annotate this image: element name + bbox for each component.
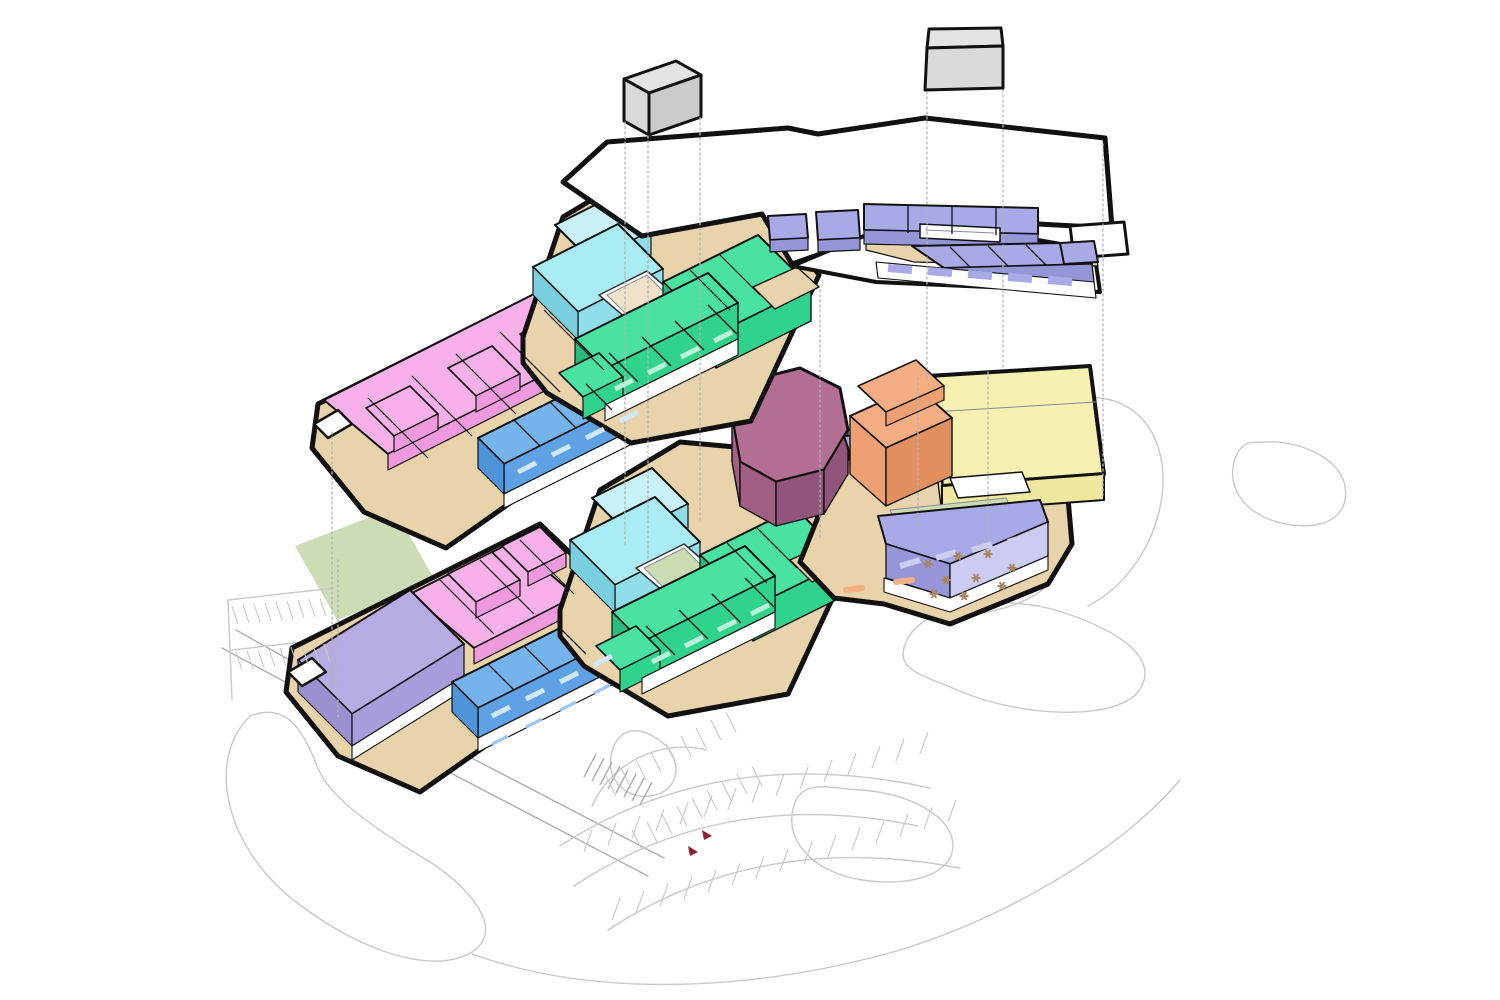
site-midlot-ticks-row1 (711, 720, 721, 740)
site-blob-right-3 (1233, 442, 1346, 526)
upper-right-purple-box-b-front (770, 238, 808, 252)
site-left-lot-ticks-row1 (243, 605, 249, 623)
site-parking-arc-outer-2 (608, 858, 960, 930)
site-left-lot-ticks-row1 (320, 598, 326, 616)
site-parking-arc-ticks-row1 (824, 760, 832, 782)
upper-right-band-windows (1008, 277, 1032, 279)
site-red-mark-2 (702, 830, 712, 840)
site-midlot-ticks-row1 (651, 752, 661, 772)
upper-right-band-windows (1048, 280, 1072, 282)
site-parking-arc-ticks-row2 (780, 849, 788, 871)
site-parking-arc-ticks-row1 (776, 774, 784, 796)
site-parking-arc-ticks-row1 (848, 753, 856, 775)
ground-orange-window-2 (896, 580, 912, 582)
site-parking-arc-ticks-row2 (612, 898, 620, 920)
site-parking-arc-ticks-row2 (660, 884, 668, 906)
site-parking-arc-outer (560, 774, 930, 846)
site-midlot-ticks-row2 (692, 798, 702, 818)
site-left-lot-ticks-row1 (232, 606, 238, 624)
site-sweep-bottom (472, 780, 1180, 984)
site-crosswalk-ticks (608, 766, 620, 789)
site-parking-arc-ticks-row1 (728, 788, 736, 810)
site-midlot-boundary (592, 747, 706, 806)
site-parking-arc-ticks-row1 (920, 732, 928, 754)
site-blob-center (610, 731, 676, 797)
exploded-axonometric-diagram (0, 0, 1500, 1000)
site-midlot-ticks-row2 (707, 790, 717, 810)
site-parking-arc-ticks-row1 (632, 816, 640, 838)
site-midlot-ticks-row1 (696, 728, 706, 748)
upper-right-band-windows (888, 268, 912, 270)
site-left-lot-ticks-row2 (258, 650, 264, 668)
site-parking-arc-ticks-row1 (872, 746, 880, 768)
site-midlot-ticks-row1 (636, 760, 646, 780)
site-left-lot-ticks-row1 (309, 599, 315, 617)
upper-right-band-windows (928, 271, 952, 273)
site-midlot-ticks-row1 (726, 712, 736, 732)
site-parking-arc-ticks-row1 (584, 830, 592, 852)
site-crosswalk-ticks (600, 762, 612, 785)
upper-right-purple-box-b-roof (768, 214, 808, 240)
site-midlot-ticks-row2 (722, 782, 732, 802)
site-parking-arc-ticks-row2 (900, 814, 908, 836)
site-left-lot-ticks-row2 (236, 652, 242, 670)
site-midlot-ticks-row2 (647, 822, 657, 842)
upper-right-purple-box-a-front (818, 238, 860, 252)
site-parking-arc-ticks-row2 (852, 828, 860, 850)
site-blob-right-2 (792, 787, 953, 882)
upper-right-purple-box-a-roof (816, 210, 860, 240)
site-left-lot-ticks-row1 (265, 603, 271, 621)
site-crosswalk-ticks (592, 758, 604, 781)
site-parking-arc-inner (574, 815, 918, 886)
ground-orange-window-1 (846, 588, 862, 590)
site-crosswalk-ticks (632, 778, 644, 801)
site-parking-arc-ticks-row1 (800, 767, 808, 789)
roof-box-b-front (925, 46, 1003, 90)
site-parking-arc-ticks-row1 (608, 823, 616, 845)
gym-roof (928, 366, 1104, 486)
site-parking-arc-ticks-row2 (732, 863, 740, 885)
diagram-page (0, 0, 1500, 1000)
site-parking-arc-ticks-row1 (752, 781, 760, 803)
site-parking-arc-ticks-row1 (656, 809, 664, 831)
site-left-lot-ticks-row1 (276, 602, 282, 620)
site-parking-arc-ticks-row2 (828, 835, 836, 857)
site-crosswalk-ticks (616, 770, 628, 793)
site-left-lot-ticks-row1 (254, 604, 260, 622)
site-midlot-ticks-row1 (621, 768, 631, 788)
site-red-mark-1 (688, 846, 698, 856)
site-parking-arc-ticks-row2 (876, 821, 884, 843)
site-left-lot-ticks-row1 (298, 600, 304, 618)
site-midlot-ticks-row2 (662, 814, 672, 834)
site-midlot-ticks-row1 (681, 736, 691, 756)
site-parking-arc-ticks-row2 (684, 877, 692, 899)
upper-right-band-windows (968, 274, 992, 276)
site-parking-arc-ticks-row1 (896, 739, 904, 761)
upper-right-purple-bend-roof (1060, 241, 1098, 264)
site-left-lot-ticks-row2 (247, 651, 253, 669)
site-midlot-ticks-row2 (632, 830, 642, 850)
site-parking-arc-ticks-row2 (948, 800, 956, 822)
site-left-lot-ticks-row1 (287, 601, 293, 619)
site-crosswalk-ticks (584, 754, 596, 777)
